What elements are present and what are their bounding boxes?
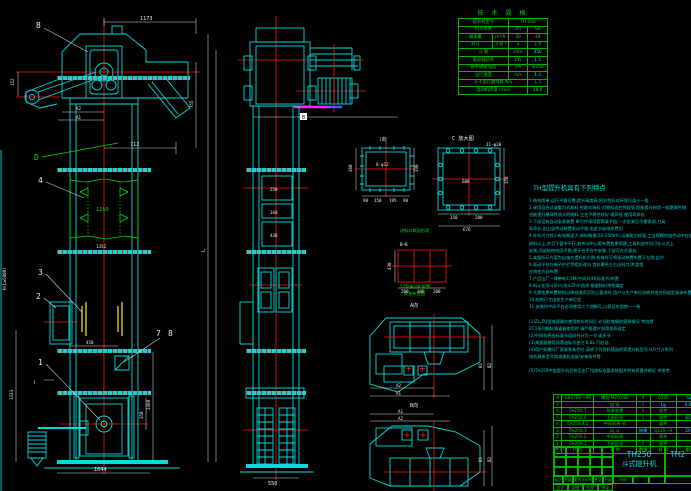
tech-table-body: 提升机型号TH 250料斗形式ZhSh输送量m³/h3048料斗斗容 l31.9… xyxy=(459,19,548,95)
drawing-number-cell: TH2 xyxy=(665,446,691,476)
callout-7: 7 xyxy=(156,329,161,338)
dim-1173: 1173 xyxy=(140,16,153,22)
intake-dim-430: 430 xyxy=(387,262,392,270)
tech-cell: 1.4 xyxy=(528,72,548,80)
note-line: (1)ZL,ZQ型减速器在使用较长时间后 必须检查蜗轮磨损情况 特别是 xyxy=(529,318,691,325)
tech-cell: kN xyxy=(508,64,528,72)
callout-8: 8 xyxy=(36,21,41,30)
scale-cell-1 xyxy=(633,476,649,484)
view-I-dim-195: 195 xyxy=(389,198,397,203)
note-line: 安装,顶部结构牢固平稳,便于在平台中安装 下部可在任意处 xyxy=(529,247,691,254)
note-line: 应改变方向布置 xyxy=(529,268,691,275)
note-line: 也能提升磨琢性较大的物料 工艺平稳性较好 噪声低 使用寿命长 xyxy=(529,211,691,218)
revision-cell xyxy=(590,447,602,457)
front-view-elevator: 8 4 3 2 1 7 8 D Ⅰ 1173 712 A2 A1 152 755… xyxy=(1,16,216,491)
note-line: 7.产品出厂一律带有4.5M(中间节)H(标准节)布置 xyxy=(529,275,691,282)
section-mark-I: Ⅰ xyxy=(34,380,36,386)
bom-cell: GB5782—86 xyxy=(562,395,594,402)
revision-label: 更改文件号 xyxy=(573,476,593,484)
signature-row: 设计制图校核审定 xyxy=(553,484,613,491)
plan1-dim-B1: B1 xyxy=(478,362,483,368)
bucket-chain-section xyxy=(42,143,138,239)
plan2-dim-A1: A1 xyxy=(398,409,404,414)
dim-438: 438 xyxy=(270,233,278,238)
tech-cell: 30 xyxy=(508,34,528,42)
discharge-chute xyxy=(148,76,190,118)
intake-section-mark: B—B xyxy=(400,242,408,247)
plan2-dim-A2: A2 xyxy=(398,416,404,421)
plan1-dim-B2: B2 xyxy=(487,362,492,368)
title-block-model-cell: TH250 斗式提升机 xyxy=(613,446,665,476)
signature-label: 校核 xyxy=(583,484,598,491)
tech-table-title: 技 术 规 格 xyxy=(458,8,548,17)
revision-label: 日期 xyxy=(603,476,613,484)
tech-cell: m³/h xyxy=(492,34,508,42)
callout-1: 1 xyxy=(38,358,43,367)
cad-drawing-canvas: 8 4 3 2 1 7 8 D Ⅰ 1173 712 A2 A1 152 755… xyxy=(0,0,691,491)
tech-cell: 运行速度 xyxy=(459,72,509,80)
plan2-dim-B2: B2 xyxy=(487,456,492,462)
dim-1333: 1333 xyxy=(9,389,14,400)
revision-cell xyxy=(590,457,602,467)
dim-1150: 1150 xyxy=(96,207,109,213)
note-line: (4)用户如需同厂家联系条件时 请将下列资料随函附寄提升机型号 H尺寸,Y系列 xyxy=(529,346,691,353)
revision-grid xyxy=(553,446,613,476)
tech-cell: 1.9 xyxy=(528,41,548,49)
tech-cell: m/s xyxy=(508,72,528,80)
view-C-holes: 11-φ20 xyxy=(486,142,502,147)
callout-D: D xyxy=(34,153,39,162)
head-vent xyxy=(112,26,122,34)
tech-cell: 48.8 xyxy=(528,87,548,95)
view-I-dim-330: 330 xyxy=(414,164,419,172)
plan1-dim-A1: A1 xyxy=(396,391,402,396)
dim-B: B xyxy=(302,115,305,121)
dim-A1: A1 xyxy=(76,115,82,120)
note-line: 10.结构尺寸由各生产单位定 xyxy=(529,296,691,303)
callout-4: 4 xyxy=(38,176,43,185)
tech-cell: 1.5 xyxy=(528,79,548,87)
revision-cell xyxy=(554,447,566,457)
motor-note-2: 安装布置图 xyxy=(404,290,425,297)
tech-cell: 料斗形式 xyxy=(459,26,509,34)
scale-row: 比例 xyxy=(613,476,691,484)
tech-cell: mm xyxy=(508,49,528,57)
detail-view-C: C 放大图 11-φ20 600 150 200 676 350 xyxy=(432,134,509,232)
signature-label: 审定 xyxy=(598,484,613,491)
revision-label: 标记 xyxy=(553,476,563,484)
callout-2: 2 xyxy=(36,292,41,301)
view-C-dim-600: 600 xyxy=(462,179,470,184)
plan1-label: A向 xyxy=(410,301,418,309)
intake-dim-200b: 200 xyxy=(433,289,441,294)
view-C-dim-150: 150 xyxy=(450,215,458,220)
note-line: 卸料斗上,并且下管中平行,其传动中心距布置变更简便,工具和部件均可在斗式上 xyxy=(529,240,691,247)
view-C-dim-350: 350 xyxy=(504,176,509,184)
view-C-dim-200: 200 xyxy=(475,215,483,220)
dim-1044: 1044 xyxy=(94,467,107,473)
tech-cell: 350 xyxy=(528,49,548,57)
tech-cell: 电动机转速 r/min xyxy=(459,87,528,95)
detail-view-I: Ⅰ向 8-φ12 360 330 90 150 195 90 xyxy=(348,135,419,203)
tech-cell: 链条破断强度 xyxy=(459,64,509,72)
dim-250: 250 xyxy=(270,187,278,192)
view-I-dim-90b: 90 xyxy=(403,198,409,203)
tech-cell: 3 xyxy=(508,41,528,49)
notes-lines: 1.结构简单,运行平稳可靠,提升高度高,密封性好对环境污染小—般2.采用混合式或… xyxy=(529,197,691,374)
note-line: 8.料斗在深斗Sh与浅斗Zh中选择 根据物料特性确定 xyxy=(529,282,691,289)
note-line: 9.凡需变更布置结构以降低噪声及防尘要求时,用户与生产单位协商并由合同规定具体布… xyxy=(529,289,691,296)
bom-cell: Q235—A xyxy=(650,427,676,434)
title-block: TH250 斗式提升机 TH2 标记处数更改文件号签字日期 设计制图校核审定 比… xyxy=(553,446,691,491)
view-C-dim-676: 676 xyxy=(463,227,471,232)
signature-label: 设计 xyxy=(553,484,568,491)
side-view-elevator: B 250 160 438 550 xyxy=(238,16,398,487)
tech-cell: 斗子运行曲线数 N/S xyxy=(459,79,528,87)
note-line: (3)减速器按照润滑油标号加注 6.8L 汽缸油 xyxy=(529,339,691,346)
scale-cell-3 xyxy=(665,476,691,484)
view-I-dim-360: 360 xyxy=(348,164,353,172)
buckets-yellow xyxy=(82,302,122,336)
note-line: 电机具体型号和减速机连接/安装条件等 xyxy=(529,353,691,360)
dim-450: 450 xyxy=(86,340,94,345)
revision-cell xyxy=(566,457,578,467)
revision-cell xyxy=(554,457,566,467)
tech-cell: 提升机型号 xyxy=(459,19,509,27)
note-line: ZC1系列蜗轮减速器使用时 请严格遵守润滑保养规定 xyxy=(529,325,691,332)
dim-350: 350 xyxy=(139,411,144,419)
drawing-model: TH250 xyxy=(614,450,664,459)
note-line: (5)TH250中由提升机总装至出厂均按标准要求装配并附有质量合格证 供参考. xyxy=(529,367,691,374)
view-I-dim-150: 150 xyxy=(374,198,382,203)
tech-table-grid: 提升机型号TH 250料斗形式ZhSh输送量m³/h3048料斗斗容 l31.9… xyxy=(458,18,548,95)
motor-note-1: Y2型电动机配置 xyxy=(400,283,430,290)
revision-cell xyxy=(578,457,590,467)
note-line: 11.安装时中间平台必须使用二个地脚孔,以保证牢固统一一致 xyxy=(529,303,691,310)
notes-block: TH型提升机具有下列特点 1.结构简单,运行平稳可靠,提升高度高,密封性好对环境… xyxy=(529,183,691,374)
note-line: 2.采用混合式或重力式卸料 挖取式装料 对物料适应性较强 既能提升粉状—般磨琢性… xyxy=(529,204,691,211)
dim-1460: 1460 xyxy=(146,399,151,410)
note-line: 1.结构简单,运行平稳可靠,提升高度高,密封性好对环境污染小—般 xyxy=(529,197,691,204)
tech-cell: 驱动轴功率 xyxy=(459,56,509,64)
plan2-label: B向 xyxy=(410,401,418,409)
dim-A2: A2 xyxy=(76,106,82,111)
note-line xyxy=(529,360,691,367)
bom-body: 8GB5782—86螺栓 M20×804Q235GB7链 条1Lg6.056TH… xyxy=(554,395,691,454)
plan2-dim-B1: B1 xyxy=(478,456,483,462)
note-line: 6.驱动平台与梯子护栏等相应改向 首轮罩壳左右出料口/井盖相 xyxy=(529,261,691,268)
tech-cell: TH 250 xyxy=(508,19,547,27)
note-line: (2)中间机壳由标准节组成共计为一节 或多节 xyxy=(529,332,691,339)
dim-1352: 1352 xyxy=(96,244,107,249)
dim-L: L xyxy=(201,249,207,252)
dim-152: 152 xyxy=(10,78,15,86)
tech-spec-table: 技 术 规 格 提升机型号TH 250料斗形式ZhSh输送量m³/h3048料斗… xyxy=(458,8,548,95)
notes-title: TH型提升机具有下列特点 xyxy=(533,183,691,192)
dim-712: 712 xyxy=(130,142,139,148)
note-line: 3.下部设有自动张紧装置 牵引件采用套筒滚子链,一次张紧后不需常调,刀具 xyxy=(529,218,691,225)
dim-550: 550 xyxy=(268,481,277,487)
scale-cell-2 xyxy=(649,476,665,484)
note-line: 4.外形尺寸较小有效断面大,卸料畅通(50-250t/h),运输能力较强,工业规… xyxy=(529,232,691,239)
tech-cell: 斗 距 xyxy=(459,49,509,57)
view-I-holes: 8-φ12 xyxy=(376,162,389,167)
signature-label: 制图 xyxy=(568,484,583,491)
note-line: 寿命长,由上部传动装置驱动平稳,由此节省维修费用 xyxy=(529,225,691,232)
drawing-name: 斗式提升机 xyxy=(614,459,664,469)
tech-cell: 料斗 xyxy=(459,41,493,49)
view-C-label: C 放大图 xyxy=(452,134,474,142)
tech-cell: 斗容 l xyxy=(492,41,508,49)
tech-cell: Sh xyxy=(528,26,548,34)
revision-label: 签字 xyxy=(593,476,603,484)
dim-755: 755 xyxy=(189,100,194,108)
note-line: 5.本图所示方案为出轴在提升机右侧 检修时可将驱动装置布置于左侧,此时 xyxy=(529,254,691,261)
head-plan-view-2: B向 A1 A2 B1 B2 xyxy=(370,401,492,491)
callout-8b: 8 xyxy=(168,329,173,338)
dim-H: H(L≥5000) xyxy=(2,267,7,290)
plan1-dim-A2: A2 xyxy=(396,383,402,388)
revision-cell xyxy=(566,447,578,457)
callout-3: 3 xyxy=(38,268,43,277)
note-line xyxy=(529,311,691,318)
dim-160: 160 xyxy=(270,210,278,215)
tech-cell: 输送量 xyxy=(459,34,493,42)
scale-label: 比例 xyxy=(613,476,633,484)
tech-cell: 48 xyxy=(528,34,548,42)
head-plan-view-1: Y2型电动机配置 安装布置图 A向 B1 B2 A2 A1 xyxy=(370,283,492,398)
tech-cell: ≥250 xyxy=(528,64,548,72)
view-I-label: Ⅰ向 xyxy=(380,135,387,143)
bom-table: 8GB5782—86螺栓 M20×804Q235GB7链 条1Lg6.056TH… xyxy=(553,394,691,454)
intake-label: 进料口断面形状 xyxy=(400,227,430,234)
revision-label-row: 标记处数更改文件号签字日期 xyxy=(553,476,613,484)
tech-cell: 1.5 xyxy=(528,56,548,64)
revision-label: 处数 xyxy=(563,476,573,484)
tech-cell: kW xyxy=(508,56,528,64)
revision-cell xyxy=(578,447,590,457)
bom-grid: 8GB5782—86螺栓 M20×804Q235GB7链 条1Lg6.056TH… xyxy=(553,394,691,454)
view-I-dim-90a: 90 xyxy=(363,198,369,203)
tech-cell: Zh xyxy=(508,26,528,34)
